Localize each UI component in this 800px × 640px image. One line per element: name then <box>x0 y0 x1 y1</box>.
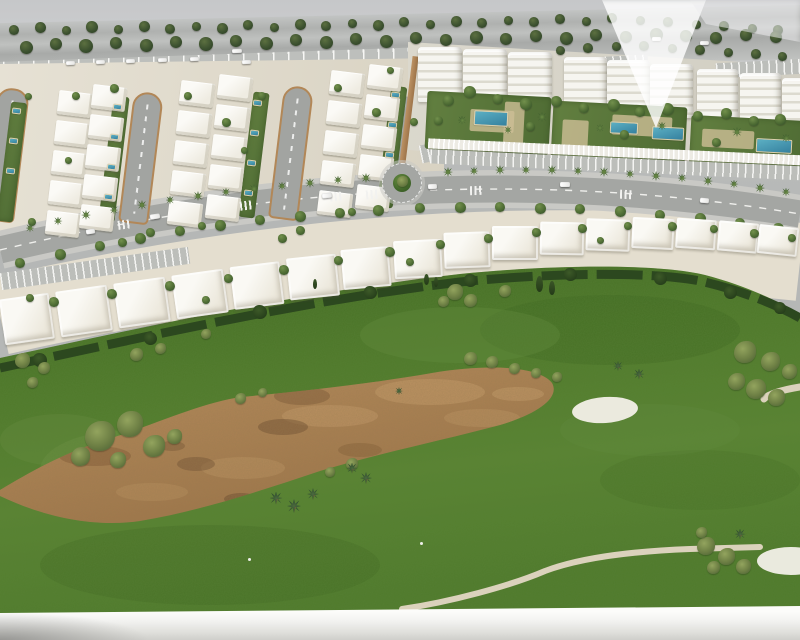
golf-course-and-boulevard-svg <box>0 0 800 640</box>
scale-model-photo <box>0 0 800 640</box>
